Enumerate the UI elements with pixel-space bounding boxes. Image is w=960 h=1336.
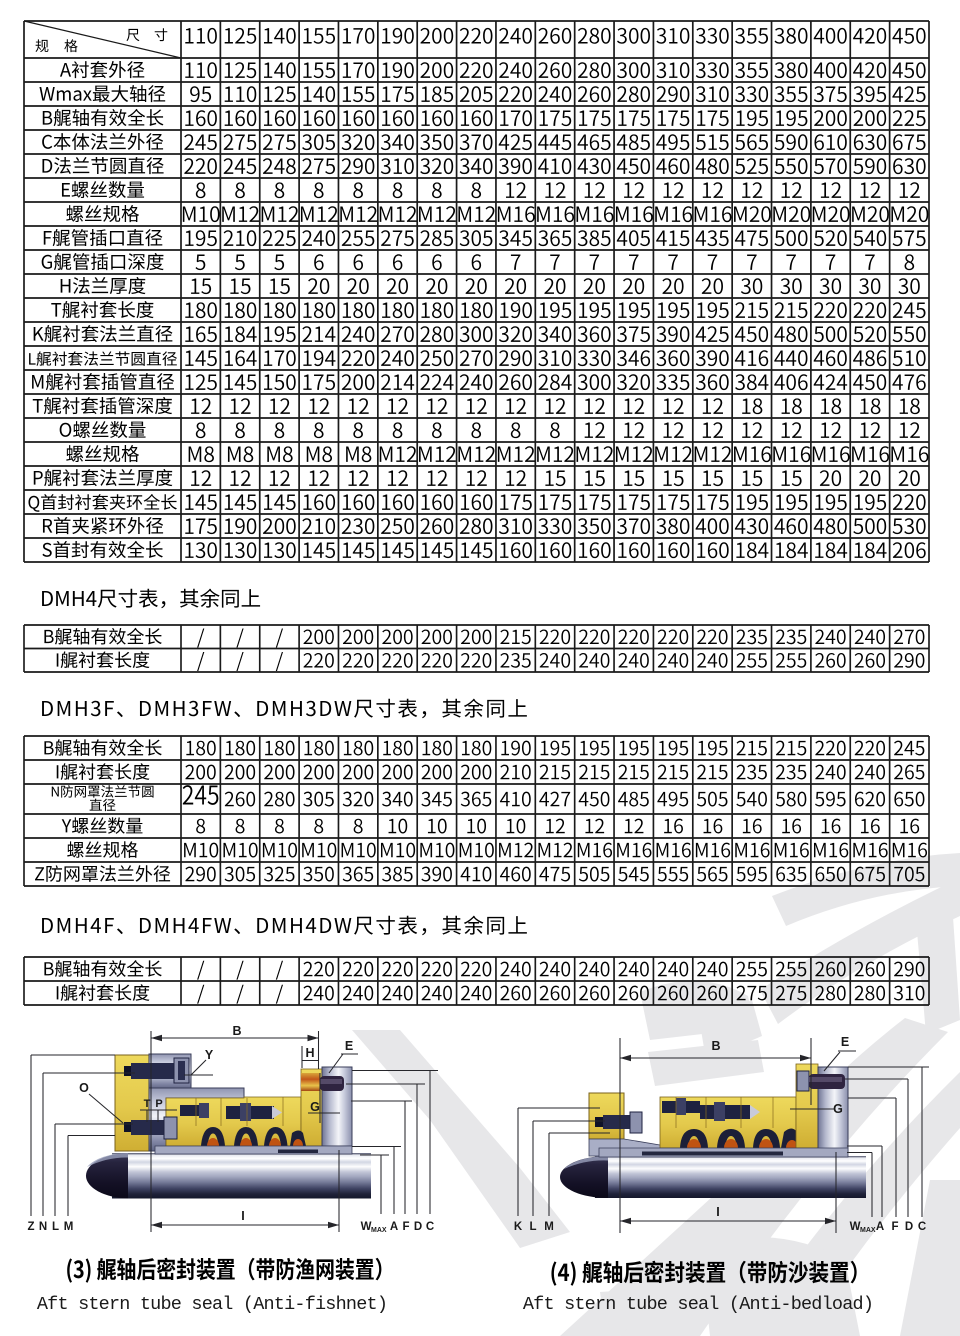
svg-text:P: P <box>155 1098 162 1110</box>
svg-text:D: D <box>414 1221 422 1233</box>
svg-text:W: W <box>850 1221 861 1233</box>
svg-text:L: L <box>529 1221 536 1233</box>
svg-text:E: E <box>841 1035 849 1049</box>
svg-text:G: G <box>310 1100 320 1114</box>
svg-text:F: F <box>891 1221 898 1233</box>
svg-text:M: M <box>544 1221 554 1233</box>
svg-text:Aft stern tube seal (Anti-fish: Aft stern tube seal (Anti-fishnet) <box>37 1294 387 1315</box>
svg-text:O: O <box>79 1081 89 1095</box>
svg-text:MAX: MAX <box>860 1227 876 1234</box>
svg-text:C: C <box>918 1221 926 1233</box>
svg-text:H: H <box>305 1046 314 1060</box>
svg-text:D: D <box>905 1221 913 1233</box>
svg-text:L: L <box>52 1221 59 1233</box>
svg-text:I: I <box>241 1209 244 1223</box>
svg-text:Aft stern tube seal (Anti-bedl: Aft stern tube seal (Anti-bedload) <box>523 1294 873 1315</box>
svg-text:W: W <box>361 1221 372 1233</box>
svg-text:I: I <box>716 1205 719 1219</box>
svg-text:F: F <box>402 1221 409 1233</box>
svg-text:A: A <box>390 1221 398 1233</box>
svg-text:B: B <box>711 1039 720 1053</box>
svg-text:M: M <box>64 1221 74 1233</box>
svg-text:K: K <box>514 1221 523 1233</box>
svg-text:B: B <box>232 1024 241 1038</box>
svg-text:A: A <box>876 1221 884 1233</box>
svg-text:G: G <box>833 1102 843 1116</box>
svg-text:T: T <box>144 1098 151 1110</box>
svg-text:E: E <box>345 1039 353 1053</box>
svg-text:Z: Z <box>27 1221 34 1233</box>
svg-text:N: N <box>39 1221 47 1233</box>
svg-text:Y: Y <box>205 1048 214 1062</box>
svg-text:C: C <box>426 1221 434 1233</box>
svg-text:MAX: MAX <box>371 1227 387 1234</box>
